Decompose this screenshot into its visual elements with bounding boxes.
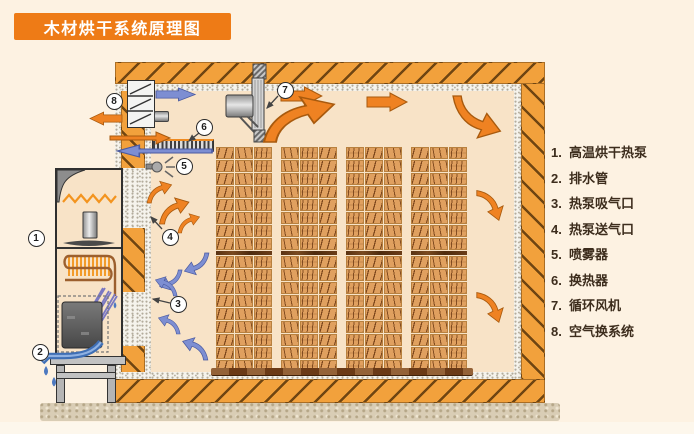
stack-spacer bbox=[346, 251, 402, 255]
legend-item-label: 排水管 bbox=[569, 172, 608, 185]
legend-item-label: 高温烘干热泵 bbox=[569, 146, 647, 159]
wood-board bbox=[449, 256, 467, 268]
wood-board bbox=[235, 282, 253, 294]
wood-board bbox=[430, 295, 448, 307]
wood-board bbox=[300, 334, 318, 346]
wood-board bbox=[384, 334, 402, 346]
wood-board bbox=[449, 147, 467, 159]
water-drop-icon bbox=[44, 366, 48, 376]
legend-item-number: 1. bbox=[551, 146, 566, 159]
wood-board bbox=[235, 173, 253, 185]
legend-item-label: 换热器 bbox=[569, 274, 608, 287]
wood-board bbox=[254, 295, 272, 307]
wood-board bbox=[430, 238, 448, 250]
wood-board bbox=[384, 186, 402, 198]
wood-board bbox=[411, 225, 429, 237]
wood-board bbox=[319, 282, 337, 294]
wood-board bbox=[300, 282, 318, 294]
wood-board bbox=[411, 147, 429, 159]
callout-1: 1 bbox=[28, 230, 45, 247]
wood-board bbox=[254, 256, 272, 268]
wood-board bbox=[365, 295, 383, 307]
wood-board bbox=[235, 199, 253, 211]
right-insulation-band bbox=[514, 84, 521, 379]
wood-board bbox=[235, 238, 253, 250]
wood-board bbox=[430, 199, 448, 211]
wood-board bbox=[235, 147, 253, 159]
ground bbox=[40, 403, 560, 421]
wood-board bbox=[411, 212, 429, 224]
wood-board bbox=[365, 199, 383, 211]
legend-item-number: 6. bbox=[551, 274, 566, 287]
wood-board bbox=[365, 269, 383, 281]
legend-item-label: 循环风机 bbox=[569, 299, 621, 312]
wood-board bbox=[281, 225, 299, 237]
wood-board bbox=[449, 282, 467, 294]
wood-board bbox=[254, 212, 272, 224]
wood-board bbox=[319, 269, 337, 281]
legend-item-label: 空气换系统 bbox=[569, 325, 634, 338]
wood-board bbox=[346, 173, 364, 185]
wood-board bbox=[254, 282, 272, 294]
wood-board bbox=[346, 147, 364, 159]
wood-board bbox=[449, 347, 467, 359]
wood-stack-group-4 bbox=[411, 147, 467, 372]
wood-board bbox=[300, 225, 318, 237]
wood-board bbox=[319, 160, 337, 172]
wood-board bbox=[254, 238, 272, 250]
chamber-top-wall bbox=[115, 62, 545, 84]
wood-board bbox=[411, 295, 429, 307]
wood-board bbox=[430, 186, 448, 198]
wood-board bbox=[411, 186, 429, 198]
wood-stack-group-1 bbox=[216, 147, 272, 372]
wood-board bbox=[346, 282, 364, 294]
wood-board bbox=[449, 173, 467, 185]
vent-handle-icon bbox=[154, 111, 169, 122]
wood-board bbox=[384, 225, 402, 237]
wood-board bbox=[281, 347, 299, 359]
wood-board bbox=[449, 160, 467, 172]
wood-board bbox=[300, 256, 318, 268]
wood-board bbox=[281, 186, 299, 198]
stand-top-bar bbox=[50, 356, 126, 365]
legend-item-7: 7.循环风机 bbox=[551, 299, 693, 312]
wood-board bbox=[216, 256, 234, 268]
wood-board bbox=[346, 321, 364, 333]
wood-board bbox=[281, 308, 299, 320]
wood-board bbox=[216, 147, 234, 159]
callout-8: 8 bbox=[106, 93, 123, 110]
wood-board bbox=[319, 256, 337, 268]
wood-board bbox=[346, 256, 364, 268]
wood-board bbox=[300, 199, 318, 211]
wood-board bbox=[384, 212, 402, 224]
wood-board bbox=[300, 347, 318, 359]
wood-board bbox=[319, 173, 337, 185]
wood-board bbox=[346, 295, 364, 307]
legend-item-number: 8. bbox=[551, 325, 566, 338]
wood-board bbox=[346, 186, 364, 198]
wood-board bbox=[449, 238, 467, 250]
wood-board bbox=[254, 321, 272, 333]
wood-board bbox=[281, 256, 299, 268]
wood-board bbox=[300, 238, 318, 250]
wood-board bbox=[365, 147, 383, 159]
wood-board bbox=[449, 295, 467, 307]
wood-board bbox=[384, 147, 402, 159]
wood-board bbox=[365, 334, 383, 346]
wood-board bbox=[365, 173, 383, 185]
wood-board bbox=[281, 147, 299, 159]
wood-board bbox=[384, 199, 402, 211]
wood-board bbox=[235, 160, 253, 172]
wood-board bbox=[235, 308, 253, 320]
wood-board bbox=[216, 295, 234, 307]
wood-board bbox=[411, 256, 429, 268]
legend-item-2: 2.排水管 bbox=[551, 172, 693, 185]
heat-exchanger bbox=[152, 139, 214, 152]
wood-board bbox=[384, 347, 402, 359]
wood-board bbox=[449, 308, 467, 320]
legend-item-number: 3. bbox=[551, 197, 566, 210]
wood-board bbox=[346, 334, 364, 346]
wood-board bbox=[411, 238, 429, 250]
wood-board bbox=[346, 347, 364, 359]
wood-board bbox=[281, 212, 299, 224]
wood-board bbox=[449, 321, 467, 333]
wood-board bbox=[365, 321, 383, 333]
wood-board bbox=[254, 308, 272, 320]
legend-item-5: 5.喷雾器 bbox=[551, 248, 693, 261]
wood-board bbox=[411, 334, 429, 346]
wood-board bbox=[384, 321, 402, 333]
wood-board bbox=[216, 321, 234, 333]
wood-board bbox=[235, 256, 253, 268]
callout-4: 4 bbox=[162, 229, 179, 246]
wood-board bbox=[384, 282, 402, 294]
legend-item-label: 热泵吸气口 bbox=[569, 197, 634, 210]
wood-board bbox=[365, 225, 383, 237]
wood-board bbox=[216, 199, 234, 211]
stack-base-plank bbox=[211, 368, 473, 376]
wood-board bbox=[216, 238, 234, 250]
wood-board bbox=[300, 186, 318, 198]
wood-board bbox=[430, 282, 448, 294]
wood-board bbox=[430, 308, 448, 320]
legend-item-label: 热泵送气口 bbox=[569, 223, 634, 236]
wood-board bbox=[300, 295, 318, 307]
wood-board bbox=[430, 269, 448, 281]
top-insulation-band bbox=[121, 84, 514, 91]
wood-board bbox=[365, 347, 383, 359]
wood-board bbox=[411, 173, 429, 185]
wood-board bbox=[235, 269, 253, 281]
wood-board bbox=[411, 308, 429, 320]
wood-board bbox=[449, 199, 467, 211]
wood-board bbox=[254, 186, 272, 198]
wood-board bbox=[216, 347, 234, 359]
legend-item-number: 7. bbox=[551, 299, 566, 312]
wood-board bbox=[235, 347, 253, 359]
wood-board bbox=[319, 347, 337, 359]
wood-board bbox=[319, 225, 337, 237]
callout-7: 7 bbox=[277, 82, 294, 99]
wood-board bbox=[319, 308, 337, 320]
wood-board bbox=[365, 186, 383, 198]
heat-pump-internals-icon bbox=[55, 168, 123, 358]
wood-board bbox=[319, 295, 337, 307]
wood-board bbox=[384, 269, 402, 281]
heat-pump-supply-port bbox=[121, 168, 145, 228]
wood-board bbox=[346, 212, 364, 224]
legend-item-number: 2. bbox=[551, 172, 566, 185]
wood-board bbox=[430, 147, 448, 159]
legend-item-number: 5. bbox=[551, 248, 566, 261]
wood-board bbox=[365, 308, 383, 320]
wood-board bbox=[235, 225, 253, 237]
legend-item-3: 3.热泵吸气口 bbox=[551, 197, 693, 210]
callout-3: 3 bbox=[170, 296, 187, 313]
stack-spacer bbox=[281, 251, 337, 255]
wood-board bbox=[384, 238, 402, 250]
wood-board bbox=[281, 160, 299, 172]
wood-board bbox=[254, 199, 272, 211]
wood-board bbox=[384, 295, 402, 307]
wood-board bbox=[384, 308, 402, 320]
wood-board bbox=[235, 212, 253, 224]
wood-board bbox=[254, 160, 272, 172]
wood-stack-group-2 bbox=[281, 147, 337, 372]
wood-board bbox=[430, 160, 448, 172]
wood-board bbox=[449, 269, 467, 281]
wood-board bbox=[384, 256, 402, 268]
wood-board bbox=[254, 225, 272, 237]
wood-board bbox=[281, 238, 299, 250]
wood-board bbox=[411, 347, 429, 359]
wood-board bbox=[235, 334, 253, 346]
page-bottom-strip bbox=[0, 422, 694, 434]
wood-board bbox=[281, 282, 299, 294]
wood-drying-system-diagram: 1 2 3 4 5 6 7 8 木材烘干系统原理图 1.高温烘干热泵2.排水管3… bbox=[0, 0, 694, 434]
wood-board bbox=[411, 282, 429, 294]
wood-board bbox=[365, 282, 383, 294]
wood-board bbox=[430, 256, 448, 268]
wood-board bbox=[300, 321, 318, 333]
wood-board bbox=[384, 173, 402, 185]
wood-board bbox=[430, 225, 448, 237]
heat-pump-unit bbox=[55, 168, 123, 358]
wood-board bbox=[216, 212, 234, 224]
wood-board bbox=[365, 212, 383, 224]
wood-board bbox=[430, 212, 448, 224]
wood-board bbox=[346, 225, 364, 237]
wood-board bbox=[254, 269, 272, 281]
wood-board bbox=[254, 173, 272, 185]
wood-board bbox=[319, 186, 337, 198]
wood-board bbox=[235, 186, 253, 198]
stand-left-leg bbox=[56, 365, 65, 403]
wood-board bbox=[346, 160, 364, 172]
wood-board bbox=[254, 334, 272, 346]
wood-board bbox=[319, 238, 337, 250]
wood-board bbox=[216, 269, 234, 281]
wood-board bbox=[281, 269, 299, 281]
wood-board bbox=[254, 347, 272, 359]
callout-5: 5 bbox=[176, 158, 193, 175]
wood-board bbox=[411, 160, 429, 172]
wood-board bbox=[411, 269, 429, 281]
legend-item-number: 4. bbox=[551, 223, 566, 236]
wood-board bbox=[346, 269, 364, 281]
wood-board bbox=[300, 269, 318, 281]
legend: 1.高温烘干热泵2.排水管3.热泵吸气口4.热泵送气口5.喷雾器6.换热器7.循… bbox=[551, 146, 693, 350]
callout-6: 6 bbox=[196, 119, 213, 136]
stand-right-leg bbox=[107, 365, 116, 403]
wood-board bbox=[449, 186, 467, 198]
wood-board bbox=[216, 173, 234, 185]
wood-board bbox=[281, 295, 299, 307]
wood-board bbox=[319, 199, 337, 211]
stand-mid-bar bbox=[56, 372, 116, 379]
wood-board bbox=[319, 147, 337, 159]
wood-board bbox=[216, 186, 234, 198]
wood-board bbox=[430, 347, 448, 359]
wood-board bbox=[235, 321, 253, 333]
wood-board bbox=[449, 212, 467, 224]
wood-board bbox=[411, 321, 429, 333]
wood-board bbox=[319, 321, 337, 333]
wood-board bbox=[216, 282, 234, 294]
wood-board bbox=[430, 173, 448, 185]
wood-board bbox=[430, 321, 448, 333]
wood-board bbox=[254, 147, 272, 159]
wood-stack-group-3 bbox=[346, 147, 402, 372]
wood-stacks bbox=[216, 147, 467, 371]
stack-spacer bbox=[411, 251, 467, 255]
page-title: 木材烘干系统原理图 bbox=[14, 13, 231, 40]
wood-board bbox=[449, 225, 467, 237]
wood-board bbox=[216, 160, 234, 172]
legend-item-8: 8.空气换系统 bbox=[551, 325, 693, 338]
wood-board bbox=[216, 334, 234, 346]
callout-2: 2 bbox=[32, 344, 49, 361]
legend-item-4: 4.热泵送气口 bbox=[551, 223, 693, 236]
stack-spacer bbox=[216, 251, 272, 255]
chamber-right-wall bbox=[521, 62, 545, 403]
wood-board bbox=[216, 225, 234, 237]
legend-item-6: 6.换热器 bbox=[551, 274, 693, 287]
wood-board bbox=[346, 308, 364, 320]
wood-board bbox=[346, 238, 364, 250]
wood-board bbox=[300, 212, 318, 224]
wood-board bbox=[300, 160, 318, 172]
wood-board bbox=[281, 199, 299, 211]
wood-board bbox=[365, 256, 383, 268]
air-exchange-vent bbox=[127, 80, 155, 128]
wood-board bbox=[281, 334, 299, 346]
wood-board bbox=[235, 295, 253, 307]
heat-pump-suction-port bbox=[121, 292, 145, 346]
wood-board bbox=[319, 212, 337, 224]
wood-board bbox=[319, 334, 337, 346]
wood-board bbox=[346, 199, 364, 211]
chamber-floor bbox=[115, 379, 545, 403]
wood-board bbox=[216, 308, 234, 320]
legend-item-label: 喷雾器 bbox=[569, 248, 608, 261]
vent-louvers-icon bbox=[128, 81, 153, 126]
wood-board bbox=[281, 173, 299, 185]
legend-item-1: 1.高温烘干热泵 bbox=[551, 146, 693, 159]
wood-board bbox=[449, 334, 467, 346]
wood-board bbox=[300, 308, 318, 320]
wood-board bbox=[384, 160, 402, 172]
wood-board bbox=[281, 321, 299, 333]
wood-board bbox=[365, 238, 383, 250]
wood-board bbox=[411, 199, 429, 211]
wood-board bbox=[300, 173, 318, 185]
wood-board bbox=[430, 334, 448, 346]
wood-board bbox=[365, 160, 383, 172]
wood-board bbox=[300, 147, 318, 159]
